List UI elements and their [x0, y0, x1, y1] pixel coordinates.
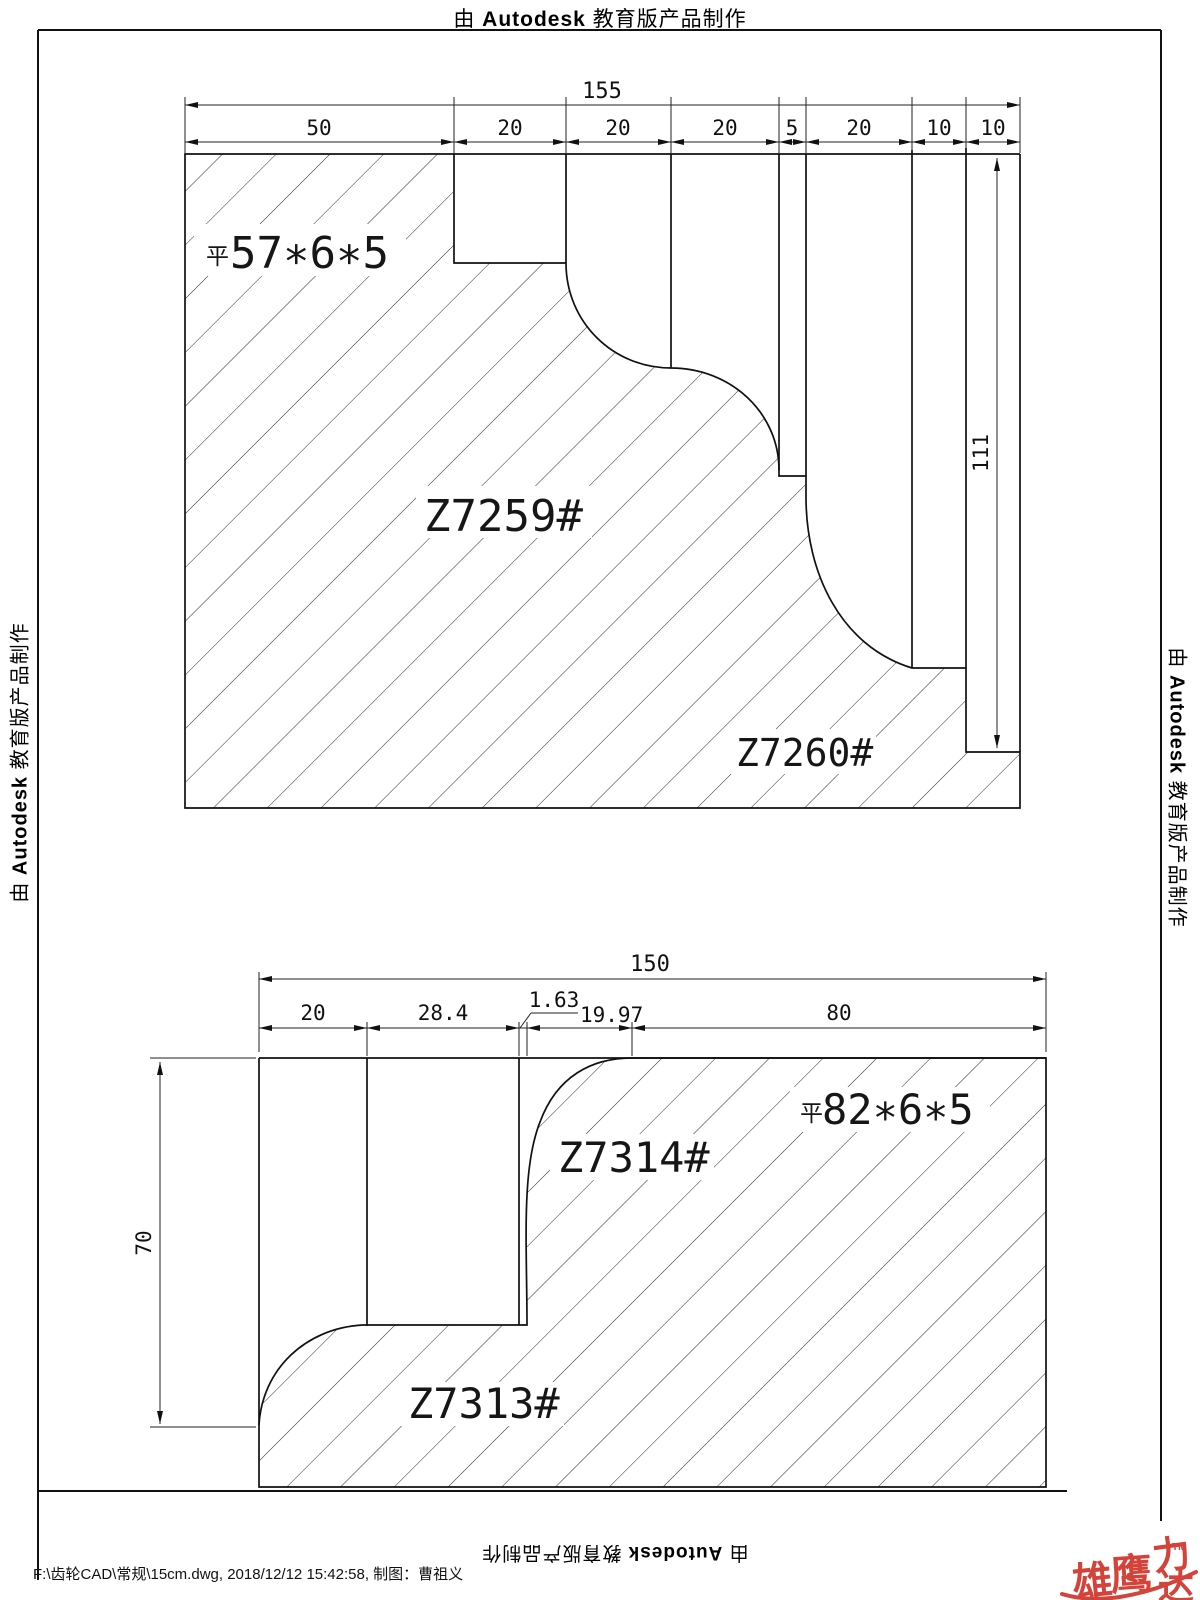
key-spec-57-6-5: 57∗6∗5 — [230, 228, 389, 279]
logo-char-ying: 鹰 — [1108, 1540, 1154, 1600]
dim-height-70: 70 — [132, 1230, 156, 1255]
file-path-stamp: F:\齿轮CAD\常规\15cm.dwg, 2018/12/12 15:42:5… — [33, 1563, 463, 1584]
dim-seg-20: 20 — [300, 1001, 325, 1025]
dim-height-111: 111 — [969, 434, 993, 472]
cad-sheet: 由 Autodesk 教育版产品制作 由 Autodesk 教育版产品制作 由 … — [0, 0, 1200, 1600]
key-spec-prefix-2: 平 — [800, 1101, 823, 1127]
dim-seg-10a: 10 — [926, 116, 951, 140]
dim-seg-20c: 20 — [712, 116, 737, 140]
bottom-drawing: 150 20 28.4 1.63 19.97 80 70 平 82∗6∗5 Z7… — [132, 952, 1046, 1487]
dim-seg-5: 5 — [786, 116, 799, 140]
dim-seg-20d: 20 — [846, 116, 871, 140]
dim-total-width-155: 155 — [582, 79, 622, 104]
part-label-z7259: Z7259# — [424, 491, 583, 542]
dim-seg-50: 50 — [306, 116, 331, 140]
dim-seg-10b: 10 — [980, 116, 1005, 140]
part-label-z7260: Z7260# — [736, 731, 873, 775]
dim-seg-19-97: 19.97 — [580, 1003, 643, 1027]
dim-seg-28-4: 28.4 — [418, 1001, 469, 1025]
top-drawing: 155 50 20 20 20 5 20 10 10 111 平 57∗6∗5 … — [185, 79, 1020, 808]
part-label-z7313: Z7313# — [408, 1379, 560, 1428]
logo-tm-mark: TM — [1172, 1542, 1186, 1553]
key-spec-82-6-5: 82∗6∗5 — [822, 1085, 974, 1134]
drawing-canvas: 155 50 20 20 20 5 20 10 10 111 平 57∗6∗5 … — [0, 0, 1200, 1600]
part-label-z7314: Z7314# — [558, 1133, 710, 1182]
dim-seg-80: 80 — [826, 1001, 851, 1025]
dim-seg-20a: 20 — [497, 116, 522, 140]
key-spec-prefix: 平 — [206, 244, 229, 270]
dim-seg-1-63: 1.63 — [529, 988, 580, 1012]
dim-total-width-150: 150 — [630, 952, 670, 977]
dim-seg-20b: 20 — [605, 116, 630, 140]
logo-char-da: 达 — [1158, 1558, 1194, 1600]
